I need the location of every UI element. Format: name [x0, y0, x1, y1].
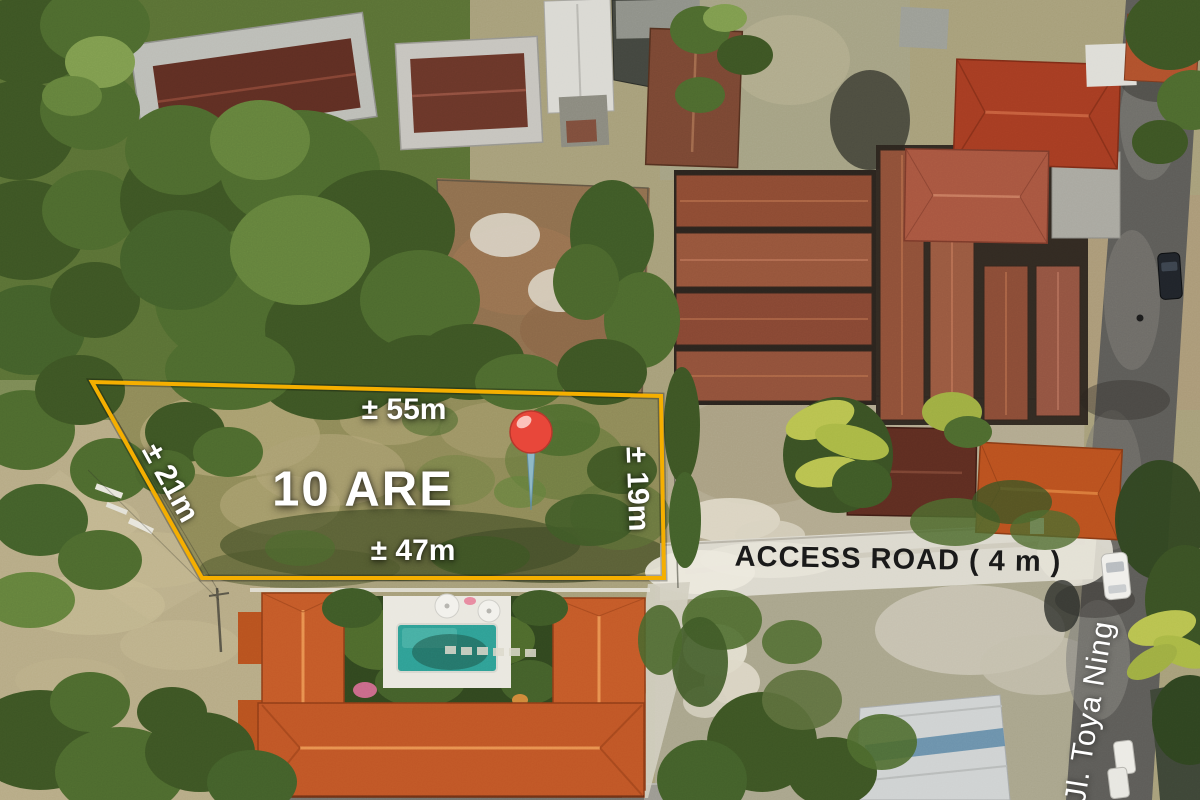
aerial-terrain	[0, 0, 1200, 800]
dimension-label-bottom: ± 47m	[371, 536, 456, 566]
plot-area-label: 10 ARE	[272, 466, 454, 515]
dimension-label-right: ± 19m	[621, 446, 654, 532]
aerial-photo: ± 55m 10 ARE ± 47m ± 21m ± 19m ACCESS RO…	[0, 0, 1200, 800]
access-road-label: ACCESS ROAD ( 4 m )	[734, 543, 1061, 578]
dimension-label-top: ± 55m	[362, 395, 447, 425]
photo-grain-overlay	[0, 0, 1200, 800]
